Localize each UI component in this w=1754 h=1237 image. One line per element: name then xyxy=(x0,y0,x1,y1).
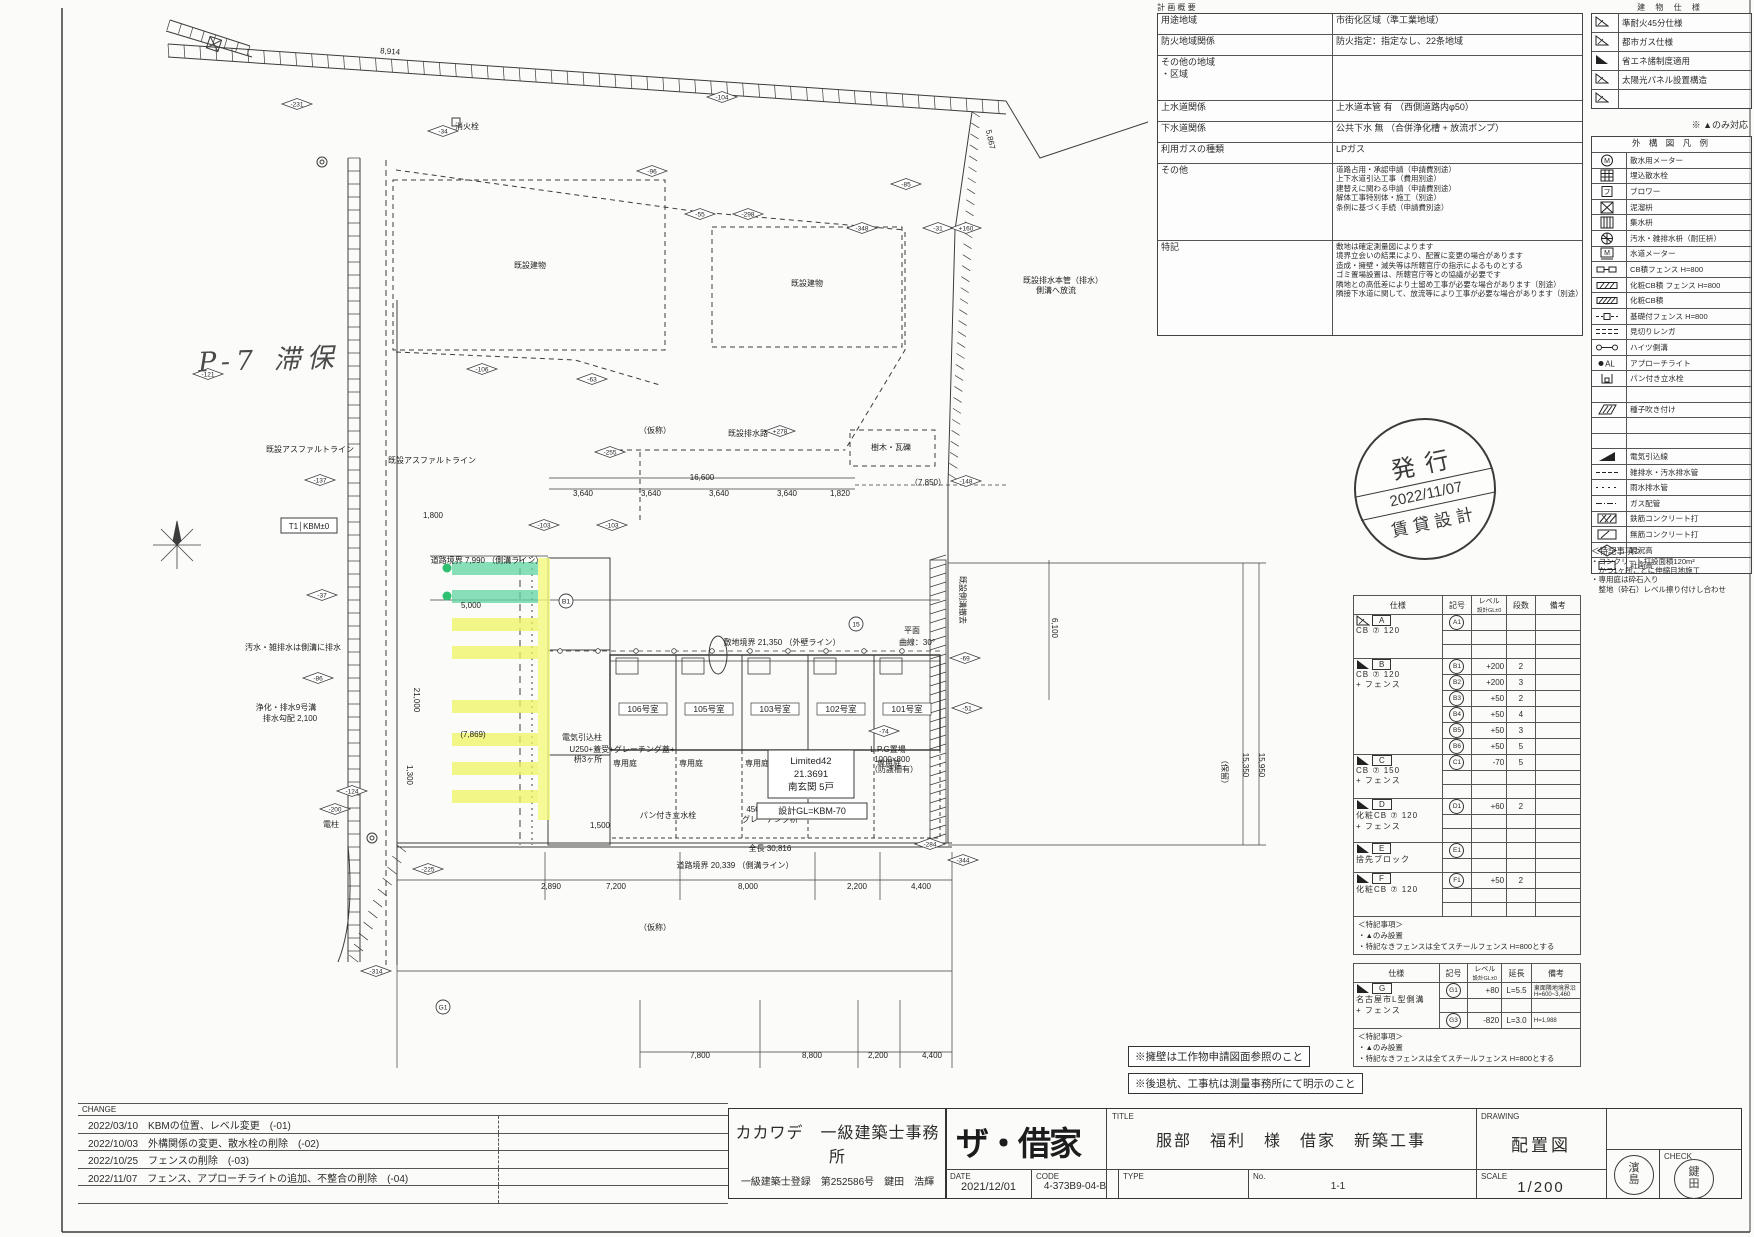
spec-remarks xyxy=(1535,889,1580,903)
plan-text: 1,300 xyxy=(405,765,414,786)
spec-symbol xyxy=(1442,785,1471,799)
legend-label: 泥溜枡 xyxy=(1627,201,1751,214)
plain-rc-icon xyxy=(1592,526,1627,543)
spec-level xyxy=(1472,843,1507,859)
legend-row: 汚水・雑排水枡（耐圧枡） xyxy=(1592,230,1751,246)
spec-col-header: 記号 xyxy=(1442,596,1471,615)
west-road xyxy=(338,158,397,965)
plan-text: 既設側溝撤去 xyxy=(958,576,968,624)
plan-text: 樹木・瓦礫 xyxy=(871,442,911,452)
road-hatch-tick xyxy=(201,31,204,41)
plan-text: -124 xyxy=(345,788,358,795)
spec-group-label: G名古屋市L型側溝+ フェンス xyxy=(1354,983,1440,1029)
legend-label xyxy=(1627,393,1751,395)
road-hatch-tick xyxy=(957,343,965,348)
plan-text: -86 xyxy=(313,675,323,682)
note-box-1: ※擁壁は工作物申請図面参照のこと xyxy=(1128,1046,1310,1067)
spec-level xyxy=(1468,999,1502,1013)
spec-count xyxy=(1507,903,1535,917)
spec-symbol: B1 xyxy=(1442,659,1471,675)
spec-remarks xyxy=(1535,873,1580,889)
rc-icon xyxy=(1592,511,1627,528)
spec-symbol xyxy=(1442,645,1471,659)
spec-row: D化粧CB ⑦ 120+ フェンスD1+602 xyxy=(1354,799,1581,815)
plan-text: 専用庭 xyxy=(613,758,637,768)
spec-col-header: 延長 xyxy=(1502,964,1532,983)
drawing-value: 配置図 xyxy=(1476,1131,1606,1156)
plan-text: -298 xyxy=(741,211,754,218)
road-hatch-tick xyxy=(971,134,979,139)
anchor-dot xyxy=(786,649,791,654)
title-label: TITLE xyxy=(1112,1112,1134,1121)
plan-text: B1 xyxy=(562,599,571,606)
legend-row: 雑排水・汚水排水管 xyxy=(1592,464,1751,480)
spec-triangle-icon xyxy=(1592,51,1619,71)
plan-text: 5,000 xyxy=(461,601,482,610)
spec-level: +60 xyxy=(1472,799,1507,815)
road-hatch-tick xyxy=(679,79,680,92)
road-hatch-tick xyxy=(383,878,392,885)
drain-pipe-icon xyxy=(1592,464,1627,481)
plan-text: Limited42 xyxy=(790,756,831,767)
legend-row: 化粧CB積 xyxy=(1592,292,1751,308)
legend-label: 化粧CB積 xyxy=(1627,294,1751,307)
spec-count: 2 xyxy=(1507,659,1535,675)
spec-count xyxy=(1507,771,1535,785)
road-hatch-tick xyxy=(439,62,440,75)
overview-label: 利用ガスの種類 xyxy=(1158,143,1333,163)
plan-text: 16,600 xyxy=(690,473,715,482)
spec-col-header: レベル設計GL±0 xyxy=(1472,596,1507,615)
road-hatch-tick xyxy=(960,299,968,304)
spec-notes: ＜特記事項＞・▲のみ設置・特記なきフェンスは全てスチールフェンス H=800とす… xyxy=(1353,1029,1581,1067)
legend-label: 基礎付フェンス H=800 xyxy=(1627,310,1751,323)
spec-col-header: 段数 xyxy=(1507,596,1535,615)
legend-label: アプローチライト xyxy=(1627,357,1751,370)
spec-count: L=5.5 xyxy=(1502,983,1532,999)
spec-group-label: CCB ⑦ 150+ フェンス xyxy=(1354,755,1443,799)
road-hatch-tick xyxy=(364,922,373,929)
sprinkler-icon xyxy=(1592,168,1627,185)
road-hatch-tick xyxy=(930,744,946,749)
code-label: CODE xyxy=(1036,1172,1059,1181)
road-hatch-tick xyxy=(583,72,584,85)
road-hatch-tick xyxy=(838,90,839,103)
spec-count xyxy=(1502,999,1532,1013)
road-hatch-tick xyxy=(312,54,313,67)
legend-row: 雨水排水管 xyxy=(1592,479,1751,495)
plan-text: 103号室 xyxy=(759,704,791,714)
building-spec-note: ※ ▲のみ対応 xyxy=(1591,118,1748,131)
plan-text: 2,890 xyxy=(541,882,562,891)
spec-col-header: 備考 xyxy=(1535,596,1580,615)
road-hatch-tick xyxy=(968,167,976,172)
plan-text: -96 xyxy=(647,168,657,175)
legend-label: 見切りレンガ xyxy=(1627,325,1751,338)
legend-row: 埋込散水栓 xyxy=(1592,168,1751,184)
building-spec-row: 都市ガス仕様 xyxy=(1592,32,1751,51)
road-hatch-tick xyxy=(966,98,967,111)
spec-col-header: レベル設計GL±0 xyxy=(1468,964,1502,983)
overview-value: LPガス xyxy=(1333,143,1582,163)
spec-row: F化粧CB ⑦ 120F1+502 xyxy=(1354,873,1581,889)
plan-text: +160 xyxy=(959,225,974,232)
plan-text: U250+蓋受+グレーチング蓋+ xyxy=(569,744,674,754)
plan-text: 全長 30,816 xyxy=(749,843,792,853)
overview-label: 用途地域 xyxy=(1158,14,1333,34)
road-hatch-tick xyxy=(328,55,329,68)
road-hatch-tick xyxy=(807,87,808,100)
road-hatch-tick xyxy=(235,42,238,52)
road-hatch-tick xyxy=(967,189,975,194)
power-line-icon xyxy=(1592,448,1627,465)
logo: ザ・借家 xyxy=(956,1117,1080,1165)
plan-text: パン付き立水栓 xyxy=(640,810,696,820)
spec-symbol: B2 xyxy=(1442,675,1471,691)
legend-label: 水道メーター xyxy=(1627,247,1751,260)
plan-text: （仮称） xyxy=(639,922,671,932)
highlight-strip xyxy=(538,558,550,820)
road-hatch-tick xyxy=(264,51,265,64)
spec-row: CCB ⑦ 150+ フェンスC1-705 xyxy=(1354,755,1581,771)
road-hatch-tick xyxy=(349,955,358,962)
spec-count: 2 xyxy=(1507,799,1535,815)
road-hatch-tick xyxy=(959,321,967,326)
legend-note-line: ・コンクリート打設面積120m² xyxy=(1591,557,1751,566)
building-spec-label: 都市ガス仕様 xyxy=(1619,35,1751,49)
legend-label: 化粧CB積 フェンス H=800 xyxy=(1627,279,1751,292)
road-hatch-tick xyxy=(373,900,382,907)
change-log-entry: 2022/10/03 外構関係の変更、散水栓の削除 (-02) xyxy=(78,1134,728,1152)
plan-text: 5,867 xyxy=(984,129,997,151)
road-hatch-tick xyxy=(759,84,760,97)
spec-remarks xyxy=(1535,659,1580,675)
road-hatch-tick xyxy=(930,816,946,821)
legend-row: 鉄筋コンクリート打 xyxy=(1592,511,1751,527)
spec-level: +200 xyxy=(1472,675,1507,691)
spec-count: 5 xyxy=(1507,755,1535,771)
gutter-icon xyxy=(1592,339,1627,356)
legend-label: 種子吹き付け xyxy=(1627,403,1751,416)
anchor-dot xyxy=(596,649,601,654)
plan-text: -85 xyxy=(901,181,911,188)
road-hatch-tick xyxy=(178,24,181,34)
road-hatch-tick xyxy=(930,573,946,578)
plan-text: 8,000 xyxy=(738,882,759,891)
spec-count: 2 xyxy=(1507,873,1535,889)
change-log-entry: 2022/11/07 フェンス、アプローチライトの追加、不整合の削除 (-04) xyxy=(78,1169,728,1187)
legend-label xyxy=(1627,440,1751,442)
spec-level xyxy=(1472,631,1507,645)
road-hatch-tick xyxy=(663,78,664,91)
handwritten-note: P-7 滞保 xyxy=(197,336,340,380)
road-hatch-tick xyxy=(647,77,648,90)
plan-text: 敷地境界 21,350 （外壁ライン） xyxy=(724,637,841,647)
plan-text: 4,400 xyxy=(911,882,932,891)
spec-level: +50 xyxy=(1472,707,1507,723)
legend-label: パン付き立水栓 xyxy=(1627,372,1751,385)
plan-text: 枡3ヶ所 xyxy=(574,754,602,764)
road-hatch-tick xyxy=(711,81,712,94)
road-hatch-tick xyxy=(423,61,424,74)
spec-group-label: E捨先ブロック xyxy=(1354,843,1443,873)
spec-count: 5 xyxy=(1507,739,1535,755)
unit-porch xyxy=(682,658,704,674)
plan-text: 専用庭 xyxy=(745,758,769,768)
road-hatch-tick xyxy=(775,85,776,98)
spec-symbol: A1 xyxy=(1442,615,1471,631)
spec-count: 2 xyxy=(1507,691,1535,707)
road-hatch-tick xyxy=(930,762,946,767)
plan-text: 曲線：30° xyxy=(899,637,935,647)
overview-value xyxy=(1333,56,1582,100)
overview-label: 特記 xyxy=(1158,241,1333,335)
spec-remarks xyxy=(1535,739,1580,755)
spec-remarks xyxy=(1535,615,1580,631)
road-hatch-tick xyxy=(930,726,946,731)
no-label: No. xyxy=(1253,1172,1265,1181)
plan-text: （仮称） xyxy=(639,425,671,435)
road-hatch-tick xyxy=(930,699,946,704)
overview-row: 用途地域市街化区域（準工業地域） xyxy=(1158,14,1582,34)
spec-level xyxy=(1472,785,1507,799)
plan-text: 7,800 xyxy=(690,1051,711,1060)
building-spec-label: 省エネ諸制度適用 xyxy=(1619,54,1751,68)
overview-label: その他 xyxy=(1158,164,1333,240)
road-hatch-tick xyxy=(930,591,946,596)
legend-row: パン付き立水栓 xyxy=(1592,370,1751,386)
plan-text: 南玄関 5戸 xyxy=(788,781,834,793)
legend-row xyxy=(1592,417,1751,433)
legend-note-line: かつ1ヶ所ごとに伸縮目地施工 xyxy=(1591,566,1751,575)
spec-remarks xyxy=(1535,631,1580,645)
road-hatch-tick xyxy=(930,807,946,812)
plan-text: 8,800 xyxy=(802,1051,823,1060)
spec-count xyxy=(1507,829,1535,843)
legend-row: 電気引込線 xyxy=(1592,448,1751,464)
spec-symbol: B3 xyxy=(1442,691,1471,707)
road-hatch-tick xyxy=(870,92,871,105)
road-hatch-tick xyxy=(930,771,946,776)
legend-row: 見切りレンガ xyxy=(1592,324,1751,340)
spec-count xyxy=(1507,785,1535,799)
building-spec-table: 準耐火45分仕様都市ガス仕様省エネ諸制度適用太陽光パネル設置構造 xyxy=(1591,13,1752,109)
road-hatch-tick xyxy=(962,266,970,271)
spec-count xyxy=(1507,815,1535,829)
road-hatch-tick xyxy=(951,441,959,446)
plan-text: 既設アスファルトライン xyxy=(388,455,476,465)
road-hatch-tick xyxy=(956,364,964,369)
spec-symbol xyxy=(1442,829,1471,843)
plan-text: -37 xyxy=(317,592,327,599)
spec-group-label: BCB ⑦ 120+ フェンス xyxy=(1354,659,1443,755)
drawing-sheet: { "overview_table": { "title": "計 画 概 要"… xyxy=(0,0,1754,1237)
road-hatch-tick xyxy=(551,70,552,83)
spec-col-header: 仕様 xyxy=(1354,964,1440,983)
overview-value: 防火指定：指定なし、22条地域 xyxy=(1333,35,1582,55)
svg-text:AL: AL xyxy=(1605,359,1615,368)
spec-remarks xyxy=(1535,771,1580,785)
faucet-icon xyxy=(1592,370,1627,387)
building-spec-row xyxy=(1592,89,1751,108)
road-hatch-tick xyxy=(391,59,392,72)
road-hatch-tick xyxy=(930,582,946,587)
spec-remarks xyxy=(1535,691,1580,707)
overview-value: 上水道本管 有 （西側道路内φ50） xyxy=(1333,101,1582,121)
note-box-2: ※後退杭、工事杭は測量事務所にて明示のこと xyxy=(1128,1073,1363,1094)
anchor-dot xyxy=(558,649,563,654)
road-hatch-tick xyxy=(387,867,396,874)
road-hatch-tick xyxy=(966,211,974,216)
spec-symbol: G3 xyxy=(1439,1013,1468,1029)
spec-level xyxy=(1472,889,1507,903)
anchor-dot xyxy=(900,649,905,654)
anchor-dot xyxy=(862,649,867,654)
legend-row: M散水用メーター xyxy=(1592,152,1751,168)
spec-group-label: F化粧CB ⑦ 120 xyxy=(1354,873,1443,917)
spec-level xyxy=(1472,815,1507,829)
road-hatch-tick xyxy=(168,44,169,57)
legend-label: 鉄筋コンクリート打 xyxy=(1627,512,1751,525)
road-hatch-tick xyxy=(455,64,456,77)
spec-level: +50 xyxy=(1472,873,1507,889)
plan-text: 消火栓 xyxy=(455,121,479,131)
overview-row: 利用ガスの種類LPガス xyxy=(1158,142,1582,163)
seed-icon xyxy=(1592,402,1627,419)
highlight-bar xyxy=(452,700,538,713)
plan-text: （7,850） xyxy=(910,478,946,487)
plan-text: L.P.G置場 xyxy=(870,744,905,754)
plan-text: 1,500 xyxy=(590,821,611,830)
highlight-bar xyxy=(452,762,538,775)
spec-count: L=3.0 xyxy=(1502,1013,1532,1029)
road-hatch-tick xyxy=(952,430,960,435)
plan-text: -225 xyxy=(421,866,434,873)
spec-symbol: G1 xyxy=(1439,983,1468,999)
spec-remarks: 東面隣地境界沿H=600~3,460 xyxy=(1531,983,1580,999)
road-hatch-tick xyxy=(615,74,616,87)
road-hatch-tick xyxy=(969,156,977,161)
spec-remarks xyxy=(1535,675,1580,691)
spec-symbol xyxy=(1442,631,1471,645)
road-hatch-tick xyxy=(950,452,958,457)
plan-text: 既設建物 xyxy=(514,260,546,270)
road-hatch-tick xyxy=(930,708,946,713)
type-label: TYPE xyxy=(1123,1172,1144,1181)
spec-table: 仕様記号レベル設計GL±0段数備考ACB ⑦ 120A1BCB ⑦ 120+ フ… xyxy=(1353,595,1581,917)
road-hatch-tick xyxy=(822,89,823,102)
spec-level: +200 xyxy=(1472,659,1507,675)
road-hatch-tick xyxy=(599,73,600,86)
overview-row: その他の地域 ・区域 xyxy=(1158,55,1582,100)
spec-col-header: 記号 xyxy=(1439,964,1468,983)
spec-level: +80 xyxy=(1468,983,1502,999)
change-log-entry: 2022/10/25 フェンスの削除 (-03) xyxy=(78,1151,728,1169)
road-hatch-tick xyxy=(886,93,887,106)
spec-remarks xyxy=(1535,645,1580,659)
plan-text: -31 xyxy=(933,225,943,232)
spec-level: +50 xyxy=(1472,723,1507,739)
spec-group-label: D化粧CB ⑦ 120+ フェンス xyxy=(1354,799,1443,843)
spec-symbol: B6 xyxy=(1442,739,1471,755)
spec-symbol: D1 xyxy=(1442,799,1471,815)
plan-text: -200 xyxy=(328,806,341,813)
spec-level xyxy=(1472,645,1507,659)
overview-table-title: 計 画 概 要 xyxy=(1157,2,1581,13)
code-value: 4-373B9-04-B xyxy=(1032,1181,1118,1192)
project-title: 服部 福利 様 借家 新築工事 xyxy=(1106,1127,1476,1151)
plan-text: 専用庭 xyxy=(877,758,901,768)
road-hatch-tick xyxy=(376,58,377,71)
road-hatch-tick xyxy=(930,627,946,632)
legend-label: 雑排水・汚水排水管 xyxy=(1627,466,1751,479)
spec-remarks: H=1,988 xyxy=(1531,1013,1580,1029)
spec-row: BCB ⑦ 120+ フェンスB1+2002 xyxy=(1354,659,1581,675)
road-hatch-tick xyxy=(471,65,472,78)
road-hatch-tick xyxy=(918,95,919,108)
legend-label: ハイツ側溝 xyxy=(1627,341,1751,354)
gas-pipe-icon xyxy=(1592,495,1627,512)
spec-symbol: B5 xyxy=(1442,723,1471,739)
east-road xyxy=(948,101,1148,843)
spec-symbol: F1 xyxy=(1442,873,1471,889)
plan-text: 21.3691 xyxy=(794,769,828,780)
road-hatch-tick xyxy=(950,97,951,110)
road-hatch-tick xyxy=(949,463,957,468)
road-hatch-tick xyxy=(930,618,946,623)
brick-edge-icon xyxy=(1592,324,1627,341)
overview-value: 公共下水 無 （合併浄化槽 + 放流ポンプ） xyxy=(1333,122,1582,142)
spec-level xyxy=(1472,615,1507,631)
plan-text: 排水勾配 2,100 xyxy=(263,713,318,723)
road-hatch-tick xyxy=(930,663,946,668)
deco-cb-icon xyxy=(1592,292,1627,309)
empty-icon xyxy=(1592,433,1627,450)
architect-office-box: カカワデ 一級建築士事務所 一級建築士登録 第252586号 鍵田 浩輝 xyxy=(728,1108,947,1199)
spec-count xyxy=(1507,889,1535,903)
legend-notes-title: ＜特記事項＞ xyxy=(1591,546,1751,557)
empty-icon xyxy=(1592,417,1627,434)
spec-count xyxy=(1507,859,1535,873)
plan-text: 3,640 xyxy=(777,489,798,498)
legend-notes: ＜特記事項＞・コンクリート打設面積120m² かつ1ヶ所ごとに伸縮目地施工・専用… xyxy=(1591,546,1751,594)
road-hatch-tick xyxy=(190,27,193,37)
road-hatch-tick xyxy=(296,53,297,66)
spec-triangle-icon xyxy=(1592,32,1619,52)
legend-row: 無筋コンクリート打 xyxy=(1592,526,1751,542)
road-hatch-tick xyxy=(930,690,946,695)
catch-basin-icon xyxy=(1592,214,1627,231)
road-hatch-tick xyxy=(695,80,696,93)
spec-group-label: ACB ⑦ 120 xyxy=(1354,615,1443,659)
legend-label: 無筋コンクリート打 xyxy=(1627,528,1751,541)
road-hatch-tick xyxy=(930,600,946,605)
plan-text: 105号室 xyxy=(693,704,725,714)
road-hatch-tick xyxy=(232,48,233,61)
overview-label: その他の地域 ・区域 xyxy=(1158,56,1333,100)
unit-dividers xyxy=(610,655,940,750)
plan-text: -106 xyxy=(475,366,488,373)
road-hatch-tick xyxy=(535,69,536,82)
sewer-basin-icon xyxy=(1592,230,1627,247)
road-hatch-tick xyxy=(397,845,406,852)
office-name: カカワデ 一級建築士事務所 xyxy=(729,1119,946,1167)
road-hatch-tick xyxy=(972,112,980,117)
road-hatch-tick xyxy=(407,60,408,73)
plan-text: -104 xyxy=(715,94,728,101)
overview-value: 市街化区域（準工業地域） xyxy=(1333,14,1582,34)
building-spec-label: 太陽光パネル設置構造 xyxy=(1619,73,1751,87)
